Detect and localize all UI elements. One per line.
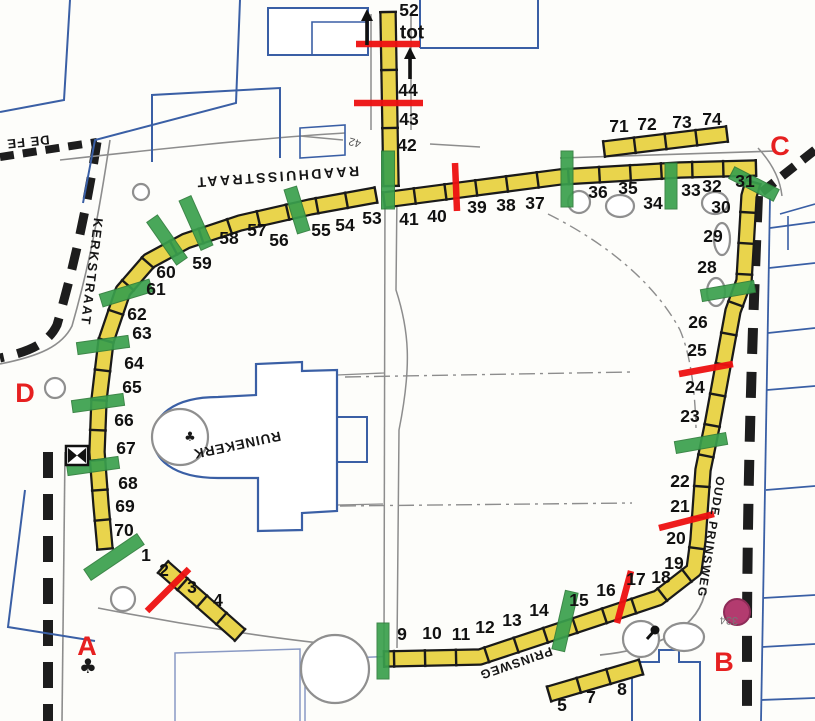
stall-number: 64	[124, 353, 144, 373]
building-outline	[0, 0, 70, 112]
stall-divider	[93, 519, 111, 521]
stall-number: 35	[618, 178, 638, 198]
stall-number: 5	[557, 695, 567, 715]
building-outline	[83, 0, 240, 203]
stall-number: 65	[122, 377, 142, 397]
stall-number: 39	[467, 197, 487, 217]
stall-number: 52	[399, 0, 419, 20]
green-section-marker	[84, 534, 144, 581]
stall-divider	[735, 274, 753, 275]
stall-number: 25	[687, 340, 707, 360]
stall-divider	[91, 489, 109, 490]
stall-number: 12	[475, 617, 495, 637]
building-outline	[632, 650, 700, 721]
street-line	[337, 504, 383, 505]
stall-number: 71	[609, 116, 629, 136]
stall-number: 33	[681, 180, 701, 200]
stall-number: 16	[596, 580, 616, 600]
street-line	[345, 372, 630, 377]
stall-number: 31	[735, 171, 755, 191]
street-line	[430, 144, 480, 147]
stall-number: 53	[362, 208, 382, 228]
green-section-marker	[377, 623, 389, 679]
stall-number: 73	[672, 112, 692, 132]
street-line	[62, 452, 65, 721]
street-line	[384, 192, 385, 650]
stall-divider	[737, 243, 755, 244]
stall-number: 66	[114, 410, 134, 430]
street-name-label: DE FE	[6, 132, 51, 151]
stall-number: 70	[114, 520, 134, 540]
stall-number: 24	[685, 377, 705, 397]
stall-number: 32	[702, 176, 722, 196]
stall-number: 13	[502, 610, 522, 630]
stall-number: 3	[187, 577, 197, 597]
stall-number: 22	[670, 471, 690, 491]
tree-circle	[664, 623, 704, 651]
stall-divider	[661, 162, 662, 180]
market-stall-map: ♣♣RAADHUISSTRAATKERKSTRAATOUDE PRINSWEGP…	[0, 0, 815, 721]
stall-number: 21	[670, 496, 690, 516]
stall-number: 56	[269, 230, 289, 250]
stall-number: 37	[525, 193, 544, 213]
stall-number: 30	[711, 197, 731, 217]
stall-number: 42	[397, 135, 417, 155]
street-line	[175, 649, 300, 721]
stall-number: 62	[127, 304, 147, 324]
building-outline	[300, 125, 345, 158]
stall-number: 63	[132, 323, 152, 343]
stall-divider	[693, 486, 711, 487]
up-arrow-head	[404, 47, 416, 59]
strip-sw-diagonal	[157, 560, 246, 641]
tree-circle	[111, 587, 135, 611]
building-outline	[152, 88, 280, 162]
stall-number: 4	[213, 590, 223, 610]
stall-number: 68	[118, 473, 138, 493]
building-outline	[268, 8, 368, 55]
stall-number: 26	[688, 312, 708, 332]
green-section-marker	[665, 163, 677, 209]
stall-number: 69	[115, 496, 135, 516]
stall-number: 67	[116, 438, 135, 458]
street-line	[300, 136, 343, 140]
tree-circle	[606, 195, 634, 217]
stall-number: 43	[399, 109, 419, 129]
stall-number: 8	[617, 679, 627, 699]
stall-number: 38	[496, 195, 516, 215]
stall-number: 17	[626, 569, 645, 589]
stall-number: 18	[651, 567, 671, 587]
tree-circle	[45, 378, 65, 398]
entrance-letter: B	[714, 647, 734, 677]
map-annotation-label: 42	[348, 135, 363, 150]
map-canvas: ♣♣RAADHUISSTRAATKERKSTRAATOUDE PRINSWEGP…	[0, 0, 815, 721]
entrance-letter: A	[77, 631, 97, 661]
stall-number: 55	[311, 220, 331, 240]
stall-number: 11	[452, 624, 471, 644]
up-arrow	[404, 47, 416, 79]
stall-number: 34	[643, 193, 663, 213]
green-section-marker	[382, 151, 395, 209]
map-annotation-label: tot	[400, 23, 425, 44]
stall-number: 61	[146, 279, 166, 299]
street-line	[337, 373, 384, 375]
road-dashed-path	[0, 142, 97, 358]
map-annotation-label: 334	[720, 614, 739, 627]
building-outline	[420, 0, 538, 48]
street-line	[396, 192, 407, 648]
stall-number: 28	[697, 257, 717, 277]
stall-number: 29	[703, 226, 723, 246]
stall-number: 54	[335, 215, 355, 235]
green-section-marker	[561, 151, 573, 207]
stall-number: 44	[398, 80, 418, 100]
street-line	[560, 151, 775, 158]
tree-circle	[133, 184, 149, 200]
stall-divider	[89, 430, 107, 431]
entrance-letter: C	[770, 131, 790, 161]
stall-number: 10	[422, 623, 442, 643]
stall-number: 1	[141, 545, 151, 565]
stall-number: 59	[192, 253, 212, 273]
building-outline	[761, 198, 770, 721]
stall-divider	[739, 212, 757, 213]
building-outline	[337, 417, 367, 462]
stall-number: 20	[666, 528, 686, 548]
stall-number: 74	[702, 109, 722, 129]
stall-number: 23	[680, 406, 700, 426]
tree-silhouette-icon: ♣	[184, 430, 196, 445]
stall-number: 15	[569, 590, 589, 610]
stall-divider	[96, 548, 114, 550]
entrance-letter: D	[15, 378, 35, 408]
stall-divider	[599, 166, 600, 184]
stall-number: 58	[219, 228, 239, 248]
stall-number: 9	[397, 624, 407, 644]
building-outline	[780, 204, 815, 250]
street-line	[548, 214, 696, 428]
stall-number: 14	[529, 600, 549, 620]
tree-circle	[301, 635, 369, 703]
stall-number: 36	[588, 182, 608, 202]
stall-number: 72	[637, 114, 657, 134]
stall-number: 7	[586, 687, 596, 707]
stall-number: 40	[427, 206, 447, 226]
street-name-label: RAADHUISSTRAAT	[194, 163, 359, 190]
stall-number: 41	[399, 209, 419, 229]
red-divider-line	[455, 163, 457, 211]
stall-number: 2	[159, 560, 169, 580]
stall-number: 57	[247, 220, 266, 240]
